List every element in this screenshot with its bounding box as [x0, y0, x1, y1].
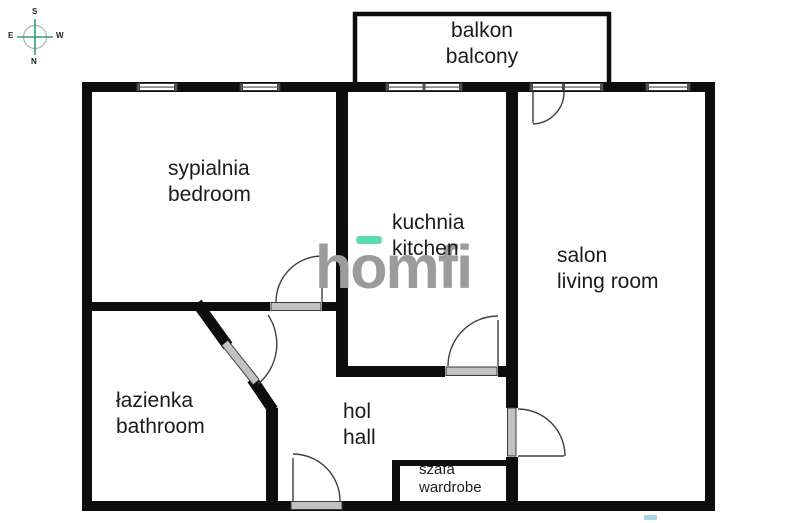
room-label-kitchen-pl: kuchnia: [392, 210, 464, 236]
room-label-hall-en: hall: [343, 425, 376, 451]
outer-wall-bottom: [82, 501, 715, 511]
window-bedroom-1: [137, 84, 177, 91]
window-kitchen: [386, 84, 462, 91]
bottom-edge-watermark-fragment: [644, 515, 657, 520]
door-kitchen: [446, 316, 498, 376]
wall-bedroom-bottom-right: [322, 302, 336, 311]
room-label-living-room-en: living room: [557, 269, 659, 295]
door-balcony: [533, 92, 564, 124]
outer-wall-left: [82, 82, 92, 511]
room-label-kitchen-en: kitchen: [392, 236, 464, 262]
window-bedroom-2: [240, 84, 280, 91]
door-hall-living-room: [508, 408, 566, 456]
room-label-living-room-pl: salon: [557, 243, 659, 269]
room-label-bedroom-pl: sypialnia: [168, 156, 251, 182]
room-label-living-room: salon living room: [557, 243, 659, 295]
room-label-balcony: balkon balcony: [355, 18, 609, 70]
compass-icon: [17, 19, 53, 55]
floor-plan-canvas: S W N E homfi balkon balcony sypialnia b…: [0, 0, 796, 523]
room-label-kitchen: kuchnia kitchen: [392, 210, 464, 262]
balcony-door-panel: [530, 84, 603, 91]
room-label-bedroom-en: bedroom: [168, 182, 251, 208]
compass-south-label: S: [32, 8, 37, 16]
wall-kitchen-bottom-right: [498, 366, 506, 377]
compass-north-label: N: [31, 58, 37, 66]
wardrobe-wall-left: [392, 466, 400, 501]
wall-bathroom-right: [266, 408, 278, 501]
room-label-bathroom-en: bathroom: [116, 414, 205, 440]
room-label-balcony-en: balcony: [355, 44, 609, 70]
room-label-wardrobe-pl: szafa: [419, 461, 482, 479]
compass-east-label: E: [8, 32, 13, 40]
wall-hall-salon-lower: [506, 457, 518, 501]
door-entrance: [291, 454, 342, 510]
door-bathroom: [222, 315, 277, 385]
room-label-hall-pl: hol: [343, 399, 376, 425]
room-label-bedroom: sypialnia bedroom: [168, 156, 251, 208]
room-label-wardrobe: szafa wardrobe: [419, 461, 482, 497]
room-label-hall: hol hall: [343, 399, 376, 451]
room-label-wardrobe-en: wardrobe: [419, 479, 482, 497]
wall-kitchen-bottom-left: [348, 366, 445, 377]
wall-bathroom-diagonal-lower: [252, 379, 273, 410]
room-label-balcony-pl: balkon: [355, 18, 609, 44]
wall-bedroom-bottom-left: [92, 302, 270, 311]
compass-west-label: W: [56, 32, 64, 40]
homfi-logo-dash: [356, 236, 382, 244]
wall-kitchen-salon: [506, 92, 518, 408]
room-label-bathroom-pl: łazienka: [116, 388, 205, 414]
window-living-room: [646, 84, 690, 91]
outer-wall-right: [705, 82, 715, 511]
room-label-bathroom: łazienka bathroom: [116, 388, 205, 440]
